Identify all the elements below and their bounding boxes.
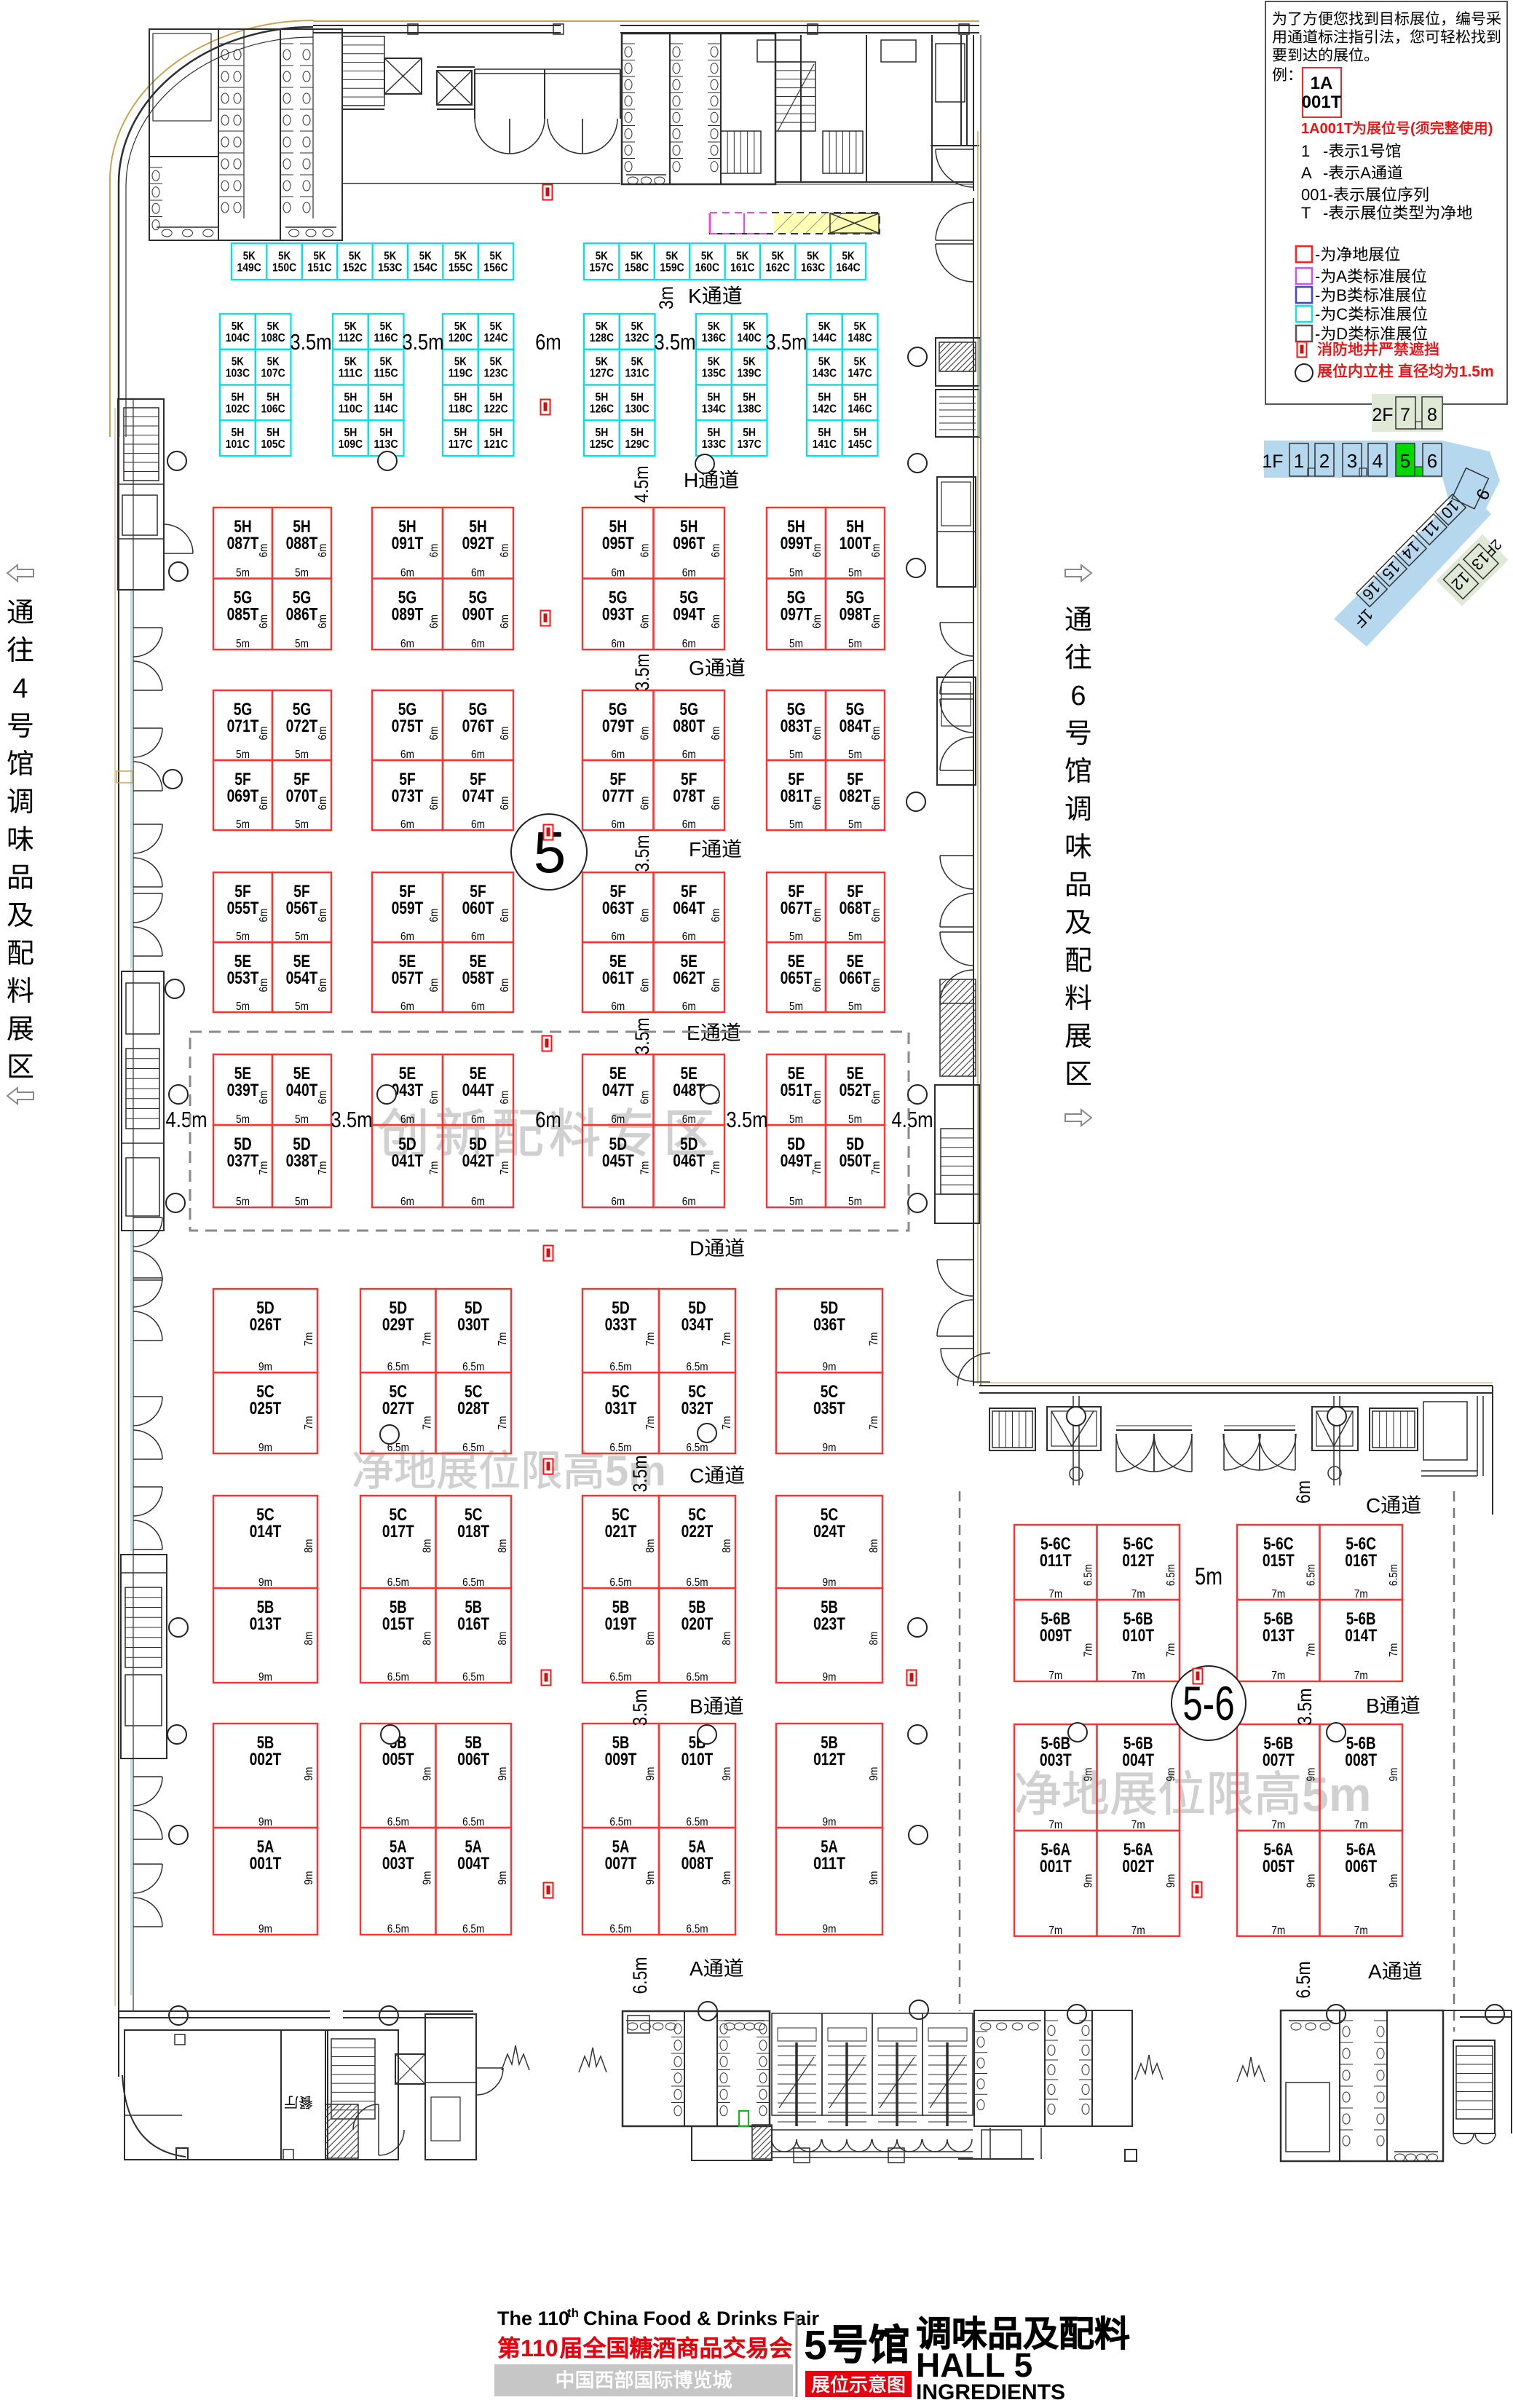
svg-text:5m: 5m (236, 818, 250, 831)
svg-text:5K: 5K (454, 356, 467, 368)
svg-text:5H: 5H (489, 391, 502, 403)
svg-text:040T: 040T (286, 1081, 318, 1100)
svg-text:155C: 155C (449, 262, 473, 275)
svg-text:-: - (1323, 204, 1328, 222)
svg-text:5H: 5H (743, 391, 756, 403)
svg-text:6m: 6m (400, 931, 414, 943)
svg-text:045T: 045T (602, 1151, 634, 1171)
svg-text:9m: 9m (644, 1767, 657, 1781)
svg-text:5K: 5K (854, 320, 866, 333)
svg-text:6.5m: 6.5m (462, 1442, 484, 1454)
svg-text:163C: 163C (801, 262, 826, 275)
svg-text:107C: 107C (261, 368, 285, 380)
svg-text:6m: 6m (870, 544, 882, 558)
svg-text:125C: 125C (590, 438, 615, 451)
svg-text:134C: 134C (702, 403, 727, 415)
svg-text:7m: 7m (1131, 1819, 1145, 1831)
svg-text:1F: 1F (1262, 451, 1283, 472)
svg-text:088T: 088T (286, 534, 318, 553)
svg-text:6.5m: 6.5m (686, 1576, 708, 1589)
svg-text:121C: 121C (483, 438, 508, 451)
svg-text:6.5m: 6.5m (686, 1361, 708, 1373)
svg-text:3.5m: 3.5m (1294, 1689, 1316, 1726)
svg-text:002T: 002T (1122, 1857, 1154, 1876)
svg-text:127C: 127C (590, 368, 615, 380)
svg-text:8m: 8m (868, 1539, 880, 1553)
svg-text:6.5m: 6.5m (686, 1923, 708, 1935)
svg-text:5-6: 5-6 (1182, 1676, 1235, 1730)
svg-text:7m: 7m (811, 1161, 823, 1175)
svg-text:8m: 8m (497, 1539, 509, 1553)
svg-text:8m: 8m (721, 1632, 733, 1646)
svg-text:9m: 9m (258, 1923, 272, 1935)
svg-text:026T: 026T (250, 1315, 282, 1335)
svg-text:5H: 5H (596, 391, 609, 403)
svg-text:9m: 9m (721, 1871, 733, 1885)
svg-text:5K: 5K (708, 356, 720, 368)
svg-text:8: 8 (1427, 405, 1437, 425)
svg-text:6.5m: 6.5m (1305, 1564, 1318, 1586)
svg-text:6m: 6m (258, 797, 270, 810)
svg-text:6m: 6m (258, 1091, 270, 1105)
svg-text:6m: 6m (317, 979, 329, 992)
svg-text:1: 1 (1360, 142, 1369, 160)
svg-text:6.5m: 6.5m (609, 1816, 631, 1828)
svg-text:052T: 052T (840, 1081, 872, 1100)
svg-text:151C: 151C (307, 262, 332, 275)
svg-text:027T: 027T (382, 1399, 414, 1418)
svg-text:5K: 5K (232, 320, 244, 333)
svg-text:5K: 5K (243, 250, 256, 263)
svg-text:5H: 5H (853, 391, 866, 403)
svg-text:110C: 110C (339, 403, 363, 415)
svg-text:7m: 7m (497, 1416, 509, 1430)
svg-text:5m: 5m (848, 1196, 862, 1208)
svg-text:6m: 6m (471, 818, 485, 831)
svg-text:079T: 079T (602, 717, 634, 736)
svg-text:005T: 005T (1263, 1857, 1295, 1876)
svg-text:096T: 096T (673, 534, 705, 553)
svg-text:5m: 5m (236, 567, 250, 580)
svg-text:084T: 084T (840, 717, 872, 736)
svg-text:6m: 6m (611, 638, 625, 650)
svg-text:044T: 044T (462, 1081, 494, 1100)
svg-text:(: ( (1410, 121, 1415, 137)
svg-text:5K: 5K (631, 320, 644, 333)
svg-text:3.5m: 3.5m (631, 1018, 653, 1055)
svg-text:023T: 023T (813, 1614, 845, 1634)
svg-text:064T: 064T (673, 899, 705, 918)
svg-text:5K: 5K (380, 356, 392, 368)
svg-text:7m: 7m (1165, 1643, 1177, 1657)
svg-text:053T: 053T (227, 968, 259, 988)
svg-text:5H: 5H (379, 391, 392, 403)
svg-text:5m: 5m (848, 931, 862, 943)
svg-text:7m: 7m (1354, 1670, 1368, 1682)
svg-text:9m: 9m (258, 1671, 272, 1683)
svg-text:123C: 123C (483, 368, 508, 380)
svg-text:5K: 5K (349, 250, 361, 263)
svg-text:015T: 015T (382, 1614, 414, 1634)
svg-text:6m: 6m (499, 1091, 511, 1105)
svg-text:5H: 5H (454, 427, 467, 439)
svg-text:8m: 8m (422, 1539, 434, 1553)
svg-text:6.5m: 6.5m (462, 1671, 484, 1683)
svg-text:037T: 037T (227, 1151, 259, 1171)
svg-text:032T: 032T (682, 1399, 714, 1418)
svg-text:9m: 9m (303, 1871, 315, 1885)
svg-text:3.5m: 3.5m (331, 1107, 372, 1132)
svg-text:6.5m: 6.5m (629, 1957, 651, 1994)
svg-text:143C: 143C (813, 368, 837, 380)
svg-text:INGREDIENTS: INGREDIENTS (916, 2380, 1065, 2404)
svg-text:161C: 161C (730, 262, 755, 275)
svg-text:7m: 7m (258, 1161, 270, 1175)
svg-text:015T: 015T (1263, 1551, 1295, 1571)
svg-text:020T: 020T (682, 1614, 714, 1634)
svg-text:041T: 041T (392, 1151, 424, 1171)
svg-text:7m: 7m (639, 1161, 652, 1175)
svg-text:6m: 6m (870, 727, 882, 741)
svg-text:5: 5 (1400, 450, 1410, 472)
svg-text:5H: 5H (266, 427, 280, 439)
svg-text:6.5m: 6.5m (609, 1361, 631, 1373)
svg-text:6.5m: 6.5m (387, 1576, 409, 1589)
svg-text:5K: 5K (631, 356, 644, 368)
svg-text:5m: 5m (789, 567, 803, 580)
svg-text:5K: 5K (743, 356, 756, 368)
svg-text:5K: 5K (278, 250, 291, 263)
svg-text:2F: 2F (1372, 405, 1393, 425)
svg-text:6m: 6m (428, 979, 441, 992)
svg-text:164C: 164C (836, 262, 861, 275)
svg-text:6m: 6m (317, 615, 329, 628)
svg-text:-: - (1315, 286, 1320, 304)
svg-text:HALL 5: HALL 5 (916, 2346, 1032, 2384)
svg-text:7m: 7m (721, 1333, 733, 1346)
svg-text:5m: 5m (789, 931, 803, 943)
svg-text:007T: 007T (1263, 1750, 1295, 1770)
svg-text:1.5m: 1.5m (1459, 363, 1494, 380)
svg-text:010T: 010T (1122, 1626, 1154, 1646)
svg-text:6m: 6m (317, 797, 329, 810)
svg-text:154C: 154C (414, 262, 438, 275)
svg-text:5K: 5K (490, 250, 502, 263)
svg-text:5K: 5K (267, 356, 280, 368)
svg-text:049T: 049T (781, 1151, 813, 1171)
svg-text:9m: 9m (497, 1871, 509, 1885)
svg-text:124C: 124C (483, 332, 508, 344)
svg-text:5H: 5H (489, 427, 502, 439)
svg-text:5: 5 (804, 2322, 827, 2369)
svg-text:7: 7 (1400, 405, 1410, 425)
svg-text:6m: 6m (611, 749, 625, 761)
svg-text:6: 6 (1070, 681, 1086, 711)
svg-text:5m: 5m (789, 1113, 803, 1126)
svg-text:7m: 7m (1083, 1643, 1095, 1657)
svg-text:7m: 7m (422, 1416, 434, 1430)
svg-text:019T: 019T (605, 1614, 637, 1634)
svg-text:102C: 102C (226, 403, 250, 415)
svg-text:9m: 9m (1083, 1768, 1095, 1782)
svg-text:7m: 7m (303, 1416, 315, 1430)
svg-text:A: A (1336, 267, 1347, 285)
svg-text:7m: 7m (721, 1416, 733, 1430)
svg-text:6m: 6m (611, 1000, 625, 1013)
svg-text:024T: 024T (813, 1522, 845, 1541)
svg-text:6: 6 (1427, 450, 1437, 472)
svg-text:5H: 5H (708, 427, 721, 439)
svg-text:C: C (1336, 305, 1348, 323)
svg-text:159C: 159C (660, 262, 684, 275)
svg-text:6.5m: 6.5m (387, 1923, 409, 1935)
svg-text:010T: 010T (682, 1750, 714, 1769)
svg-text:065T: 065T (781, 968, 813, 988)
svg-text:112C: 112C (339, 332, 363, 344)
svg-text:051T: 051T (781, 1081, 813, 1100)
svg-text:6m: 6m (870, 979, 882, 992)
svg-text:-: - (1315, 267, 1320, 285)
svg-text:9m: 9m (721, 1767, 733, 1781)
svg-text:6.5m: 6.5m (686, 1816, 708, 1828)
svg-text:6m: 6m (682, 567, 696, 580)
svg-text:-: - (1323, 164, 1328, 182)
svg-text:6m: 6m (471, 1113, 485, 1126)
svg-text:-: - (1315, 305, 1320, 323)
svg-text:152C: 152C (343, 262, 368, 275)
svg-text:129C: 129C (625, 438, 649, 451)
svg-text:137C: 137C (737, 438, 762, 451)
svg-text:062T: 062T (673, 968, 705, 988)
svg-text:7m: 7m (428, 1161, 441, 1175)
svg-text:8m: 8m (644, 1539, 657, 1553)
svg-text:6m: 6m (400, 749, 414, 761)
svg-text:9m: 9m (258, 1361, 272, 1373)
svg-text:A: A (1368, 1960, 1382, 1983)
svg-text:162C: 162C (766, 262, 791, 275)
svg-text:076T: 076T (462, 717, 494, 736)
svg-text:6m: 6m (870, 797, 882, 810)
svg-text:6m: 6m (535, 329, 561, 355)
svg-text:6.5m: 6.5m (609, 1923, 631, 1935)
svg-text:059T: 059T (392, 899, 424, 918)
svg-text:103C: 103C (226, 368, 250, 380)
svg-text:1: 1 (1294, 450, 1304, 472)
svg-text:126C: 126C (590, 403, 615, 415)
svg-text:017T: 017T (382, 1522, 414, 1541)
svg-text:039T: 039T (227, 1081, 259, 1100)
svg-text:6m: 6m (317, 727, 329, 741)
svg-text:8m: 8m (422, 1632, 434, 1646)
svg-text:022T: 022T (682, 1522, 714, 1541)
svg-text:3m: 3m (655, 286, 677, 309)
svg-text:6m: 6m (428, 1091, 441, 1105)
svg-text:105C: 105C (261, 438, 285, 451)
svg-text:6m: 6m (811, 797, 823, 810)
svg-text:3.5m: 3.5m (654, 329, 695, 355)
svg-text:5H: 5H (454, 391, 467, 403)
svg-text:6m: 6m (471, 567, 485, 580)
svg-text:110: 110 (521, 2335, 558, 2361)
svg-text:104C: 104C (226, 332, 250, 344)
svg-text:6.5m: 6.5m (686, 1671, 708, 1683)
svg-text:6m: 6m (639, 544, 652, 558)
svg-text:6m: 6m (499, 727, 511, 741)
svg-text:100T: 100T (840, 534, 872, 553)
svg-text:6m: 6m (682, 931, 696, 943)
svg-text:5K: 5K (631, 250, 643, 263)
svg-text:149C: 149C (237, 262, 262, 275)
svg-text:156C: 156C (483, 262, 508, 275)
svg-text:6m: 6m (682, 749, 696, 761)
svg-text:5K: 5K (454, 250, 467, 263)
svg-text:7m: 7m (1305, 1643, 1318, 1657)
svg-text:004T: 004T (1122, 1750, 1154, 1770)
svg-text:5K: 5K (419, 250, 432, 263)
svg-text:6m: 6m (611, 1113, 625, 1126)
svg-text:C: C (690, 1464, 704, 1487)
svg-text:097T: 097T (781, 605, 813, 625)
svg-text:6m: 6m (471, 1000, 485, 1013)
svg-text:140C: 140C (737, 332, 762, 344)
svg-text:028T: 028T (457, 1399, 489, 1418)
svg-text:7m: 7m (644, 1333, 657, 1346)
svg-text:7m: 7m (1388, 1643, 1400, 1657)
svg-text:075T: 075T (392, 717, 424, 736)
svg-text:054T: 054T (286, 968, 318, 988)
svg-text:5H: 5H (818, 427, 831, 439)
svg-text:093T: 093T (602, 605, 634, 625)
svg-text:6m: 6m (710, 615, 722, 628)
svg-text:001-: 001- (1301, 186, 1333, 204)
svg-text:5K: 5K (267, 320, 280, 333)
svg-text:3.5m: 3.5m (402, 329, 443, 355)
svg-text:006T: 006T (1345, 1857, 1377, 1876)
svg-text:5K: 5K (743, 320, 756, 333)
svg-text:069T: 069T (227, 786, 259, 806)
svg-text:091T: 091T (392, 534, 424, 553)
svg-text:6m: 6m (471, 638, 485, 650)
svg-text:098T: 098T (840, 605, 872, 625)
svg-text:6m: 6m (710, 727, 722, 741)
svg-text:6.5m: 6.5m (1292, 1962, 1314, 1999)
svg-text:6.5m: 6.5m (387, 1361, 409, 1373)
svg-text:6m: 6m (499, 615, 511, 628)
svg-text:-: - (1323, 142, 1328, 160)
svg-text:K: K (688, 285, 702, 307)
svg-text:B: B (1336, 286, 1347, 304)
svg-text:9m: 9m (1083, 1874, 1095, 1888)
svg-text:071T: 071T (227, 717, 259, 736)
svg-text:3.5m: 3.5m (631, 835, 653, 872)
svg-text:5H: 5H (631, 391, 644, 403)
svg-text:5m: 5m (848, 1000, 862, 1013)
svg-text:038T: 038T (286, 1151, 318, 1171)
svg-text:114C: 114C (374, 403, 398, 415)
svg-text:5H: 5H (631, 427, 644, 439)
svg-text:5H: 5H (596, 427, 609, 439)
svg-text:5K: 5K (596, 250, 608, 263)
svg-text:5H: 5H (344, 391, 357, 403)
svg-text:001T: 001T (1040, 1857, 1072, 1876)
svg-text:6m: 6m (611, 567, 625, 580)
svg-text:012T: 012T (1122, 1551, 1154, 1571)
svg-text:5m: 5m (789, 749, 803, 761)
svg-text:6.5m: 6.5m (609, 1671, 631, 1683)
svg-text:070T: 070T (286, 786, 318, 806)
svg-text:5m: 5m (295, 1000, 309, 1013)
svg-text:5K: 5K (232, 356, 244, 368)
svg-text:5H: 5H (853, 427, 866, 439)
svg-text:6m: 6m (710, 979, 722, 992)
svg-text:8m: 8m (303, 1539, 315, 1553)
svg-text:4: 4 (12, 674, 28, 704)
svg-text:042T: 042T (462, 1151, 494, 1171)
svg-text:035T: 035T (813, 1399, 845, 1418)
svg-text:1: 1 (1301, 142, 1310, 160)
svg-text:5m: 5m (789, 818, 803, 831)
svg-text:095T: 095T (602, 534, 634, 553)
svg-text:6m: 6m (811, 1091, 823, 1105)
svg-text:F: F (689, 838, 701, 861)
svg-text:016T: 016T (457, 1614, 489, 1634)
svg-text:021T: 021T (605, 1522, 637, 1541)
svg-text:China Food & Drinks Fair: China Food & Drinks Fair (583, 2308, 820, 2329)
svg-text:117C: 117C (449, 438, 473, 451)
svg-text:060T: 060T (462, 899, 494, 918)
svg-text:014T: 014T (250, 1522, 282, 1541)
svg-text:6m: 6m (811, 979, 823, 992)
svg-text:9m: 9m (258, 1576, 272, 1589)
svg-text:6.5m: 6.5m (387, 1816, 409, 1828)
svg-text:6m: 6m (682, 1000, 696, 1013)
svg-text:072T: 072T (286, 717, 318, 736)
svg-text:113C: 113C (374, 438, 398, 451)
svg-text:063T: 063T (602, 899, 634, 918)
svg-text:A: A (690, 1957, 703, 1980)
svg-text:086T: 086T (286, 605, 318, 625)
svg-text:4: 4 (1372, 450, 1383, 472)
svg-text:9m: 9m (422, 1767, 434, 1781)
svg-text:5m: 5m (295, 818, 309, 831)
svg-text:5K: 5K (772, 250, 784, 263)
svg-text:050T: 050T (840, 1151, 872, 1171)
svg-text:4.5m: 4.5m (891, 1107, 933, 1132)
svg-text:6m: 6m (258, 615, 270, 628)
svg-text:9m: 9m (868, 1767, 880, 1781)
svg-text:7m: 7m (1271, 1925, 1285, 1937)
svg-text:145C: 145C (848, 438, 872, 451)
svg-text:5K: 5K (344, 356, 357, 368)
svg-text:081T: 081T (781, 786, 813, 806)
svg-text:2: 2 (1319, 450, 1330, 472)
svg-text:6m: 6m (682, 818, 696, 831)
svg-text:018T: 018T (457, 1522, 489, 1541)
svg-text:6m: 6m (870, 909, 882, 923)
svg-text:5m: 5m (236, 931, 250, 943)
svg-text:6m: 6m (400, 1000, 414, 1013)
svg-text:6m: 6m (710, 797, 722, 810)
svg-text:3.5m: 3.5m (726, 1107, 767, 1132)
svg-text:002T: 002T (250, 1750, 282, 1769)
svg-text:6m: 6m (400, 638, 414, 650)
svg-text:6m: 6m (499, 544, 511, 558)
svg-text:4.5m: 4.5m (165, 1107, 207, 1132)
svg-text:136C: 136C (702, 332, 727, 344)
svg-text:138C: 138C (737, 403, 762, 415)
svg-text:7m: 7m (422, 1333, 434, 1346)
svg-text:6m: 6m (317, 909, 329, 923)
